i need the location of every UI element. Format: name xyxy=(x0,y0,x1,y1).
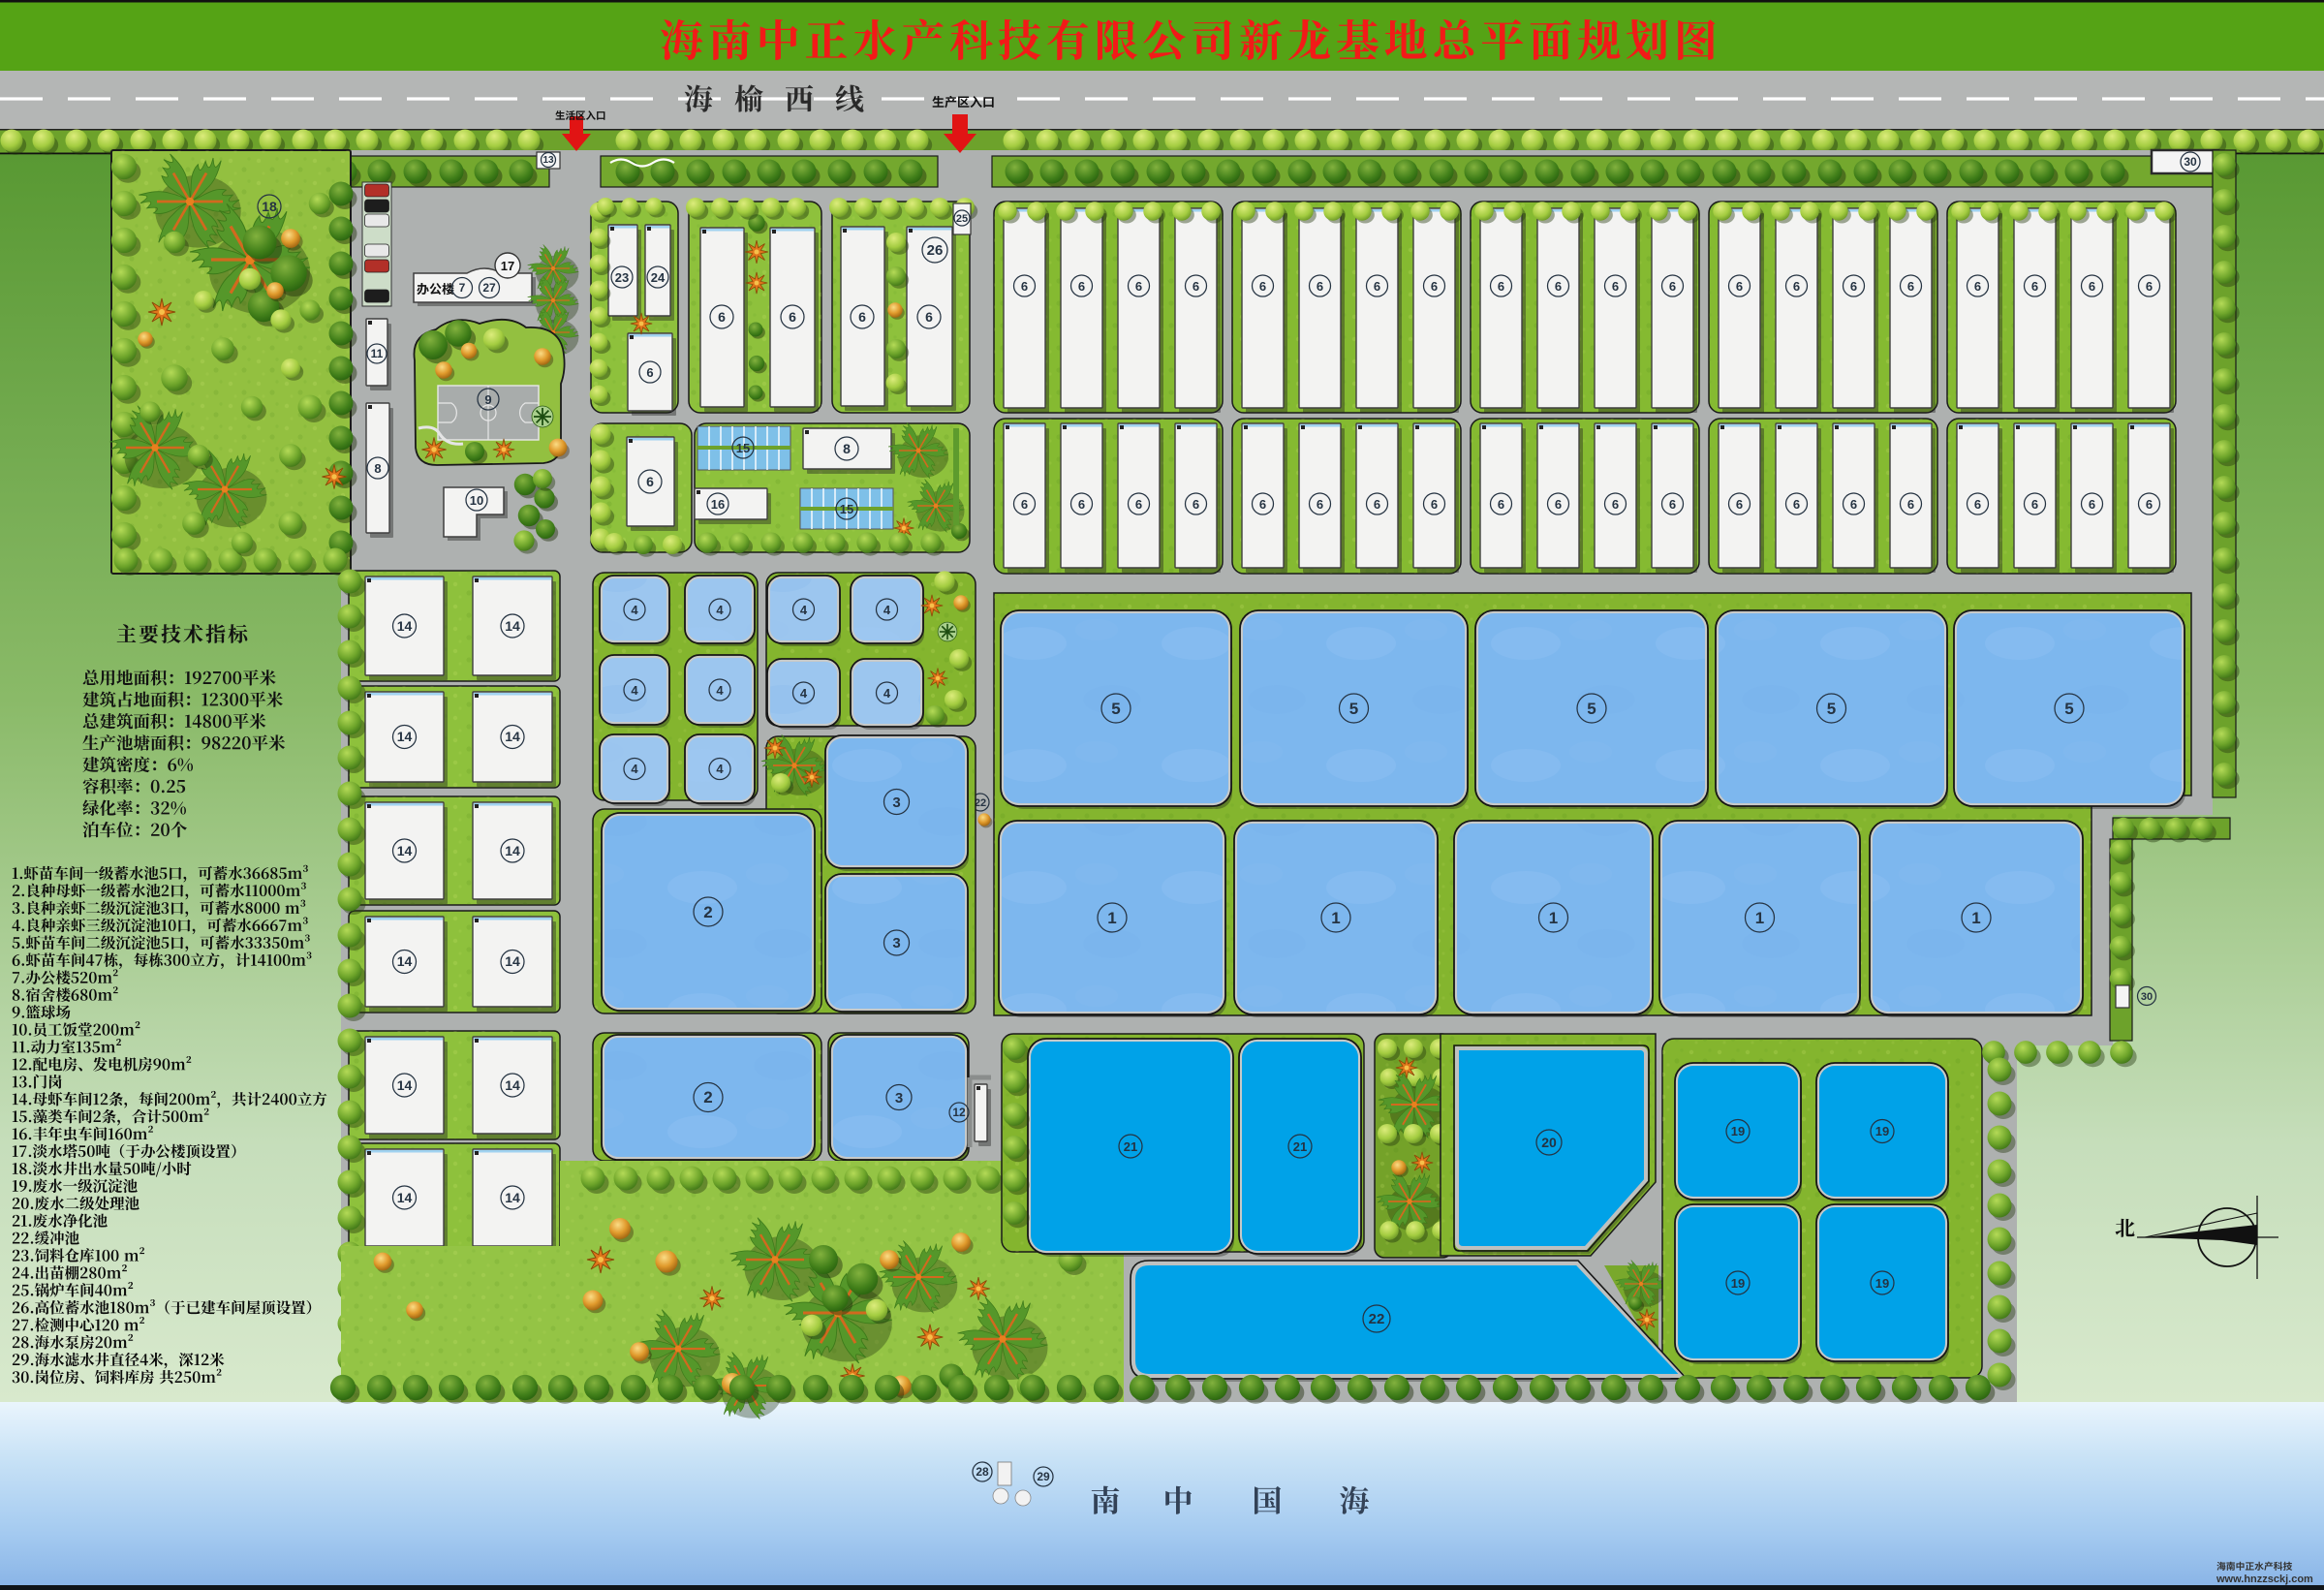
svg-text:6: 6 xyxy=(2031,279,2038,294)
svg-text:6: 6 xyxy=(1736,279,1743,294)
svg-text:14: 14 xyxy=(397,1077,413,1093)
svg-text:3: 3 xyxy=(895,1090,903,1107)
svg-text:2: 2 xyxy=(703,903,712,921)
svg-text:11: 11 xyxy=(371,347,384,360)
svg-text:1: 1 xyxy=(1107,909,1116,927)
svg-text:10: 10 xyxy=(470,493,483,508)
svg-text:15: 15 xyxy=(840,502,853,516)
svg-text:30: 30 xyxy=(2141,991,2153,1003)
svg-text:6: 6 xyxy=(1612,279,1619,294)
svg-text:20: 20 xyxy=(1541,1135,1557,1150)
svg-text:5: 5 xyxy=(1349,700,1358,718)
svg-text:6: 6 xyxy=(1907,279,1914,294)
svg-text:14: 14 xyxy=(505,618,520,634)
svg-text:26: 26 xyxy=(927,242,944,259)
svg-text:28: 28 xyxy=(976,1465,989,1479)
svg-text:4: 4 xyxy=(883,686,891,701)
svg-text:6: 6 xyxy=(1431,497,1438,512)
svg-text:12: 12 xyxy=(952,1106,966,1119)
svg-text:6: 6 xyxy=(1793,497,1800,512)
svg-text:6: 6 xyxy=(2089,497,2095,512)
svg-text:14: 14 xyxy=(505,1190,520,1205)
svg-text:www.hnzzsckj.com: www.hnzzsckj.com xyxy=(2216,1574,2313,1585)
svg-text:27: 27 xyxy=(482,281,496,295)
svg-text:30: 30 xyxy=(2184,155,2197,169)
svg-text:6: 6 xyxy=(1259,497,1266,512)
svg-text:3: 3 xyxy=(892,935,900,951)
svg-text:6: 6 xyxy=(1555,279,1562,294)
svg-text:14: 14 xyxy=(397,843,413,858)
svg-text:6: 6 xyxy=(1612,497,1619,512)
svg-text:6: 6 xyxy=(1669,279,1676,294)
svg-text:6: 6 xyxy=(1021,279,1028,294)
svg-text:14: 14 xyxy=(397,1190,413,1205)
svg-text:6: 6 xyxy=(1259,279,1266,294)
svg-text:9: 9 xyxy=(484,392,491,407)
svg-text:3: 3 xyxy=(892,795,900,811)
svg-text:6: 6 xyxy=(1850,497,1857,512)
svg-text:29: 29 xyxy=(1037,1470,1050,1483)
svg-text:8: 8 xyxy=(374,461,381,476)
svg-text:4: 4 xyxy=(883,603,891,617)
svg-text:6: 6 xyxy=(1793,279,1800,294)
svg-text:6: 6 xyxy=(1555,497,1562,512)
svg-text:6: 6 xyxy=(1193,497,1199,512)
svg-text:4: 4 xyxy=(631,603,638,617)
svg-text:6: 6 xyxy=(2146,497,2153,512)
svg-text:4: 4 xyxy=(631,683,638,698)
svg-text:6: 6 xyxy=(1317,497,1323,512)
svg-text:6: 6 xyxy=(1078,279,1085,294)
svg-text:6: 6 xyxy=(1078,497,1085,512)
svg-text:21: 21 xyxy=(1124,1139,1137,1154)
svg-text:21: 21 xyxy=(1293,1139,1307,1154)
svg-text:4: 4 xyxy=(716,683,724,698)
svg-text:5: 5 xyxy=(1111,700,1120,718)
svg-text:14: 14 xyxy=(397,618,413,634)
svg-text:7: 7 xyxy=(459,281,466,295)
svg-text:6: 6 xyxy=(858,309,866,325)
svg-text:23: 23 xyxy=(615,270,629,285)
svg-text:25: 25 xyxy=(956,213,968,225)
svg-text:4: 4 xyxy=(800,686,808,701)
svg-text:4: 4 xyxy=(800,603,808,617)
svg-text:6: 6 xyxy=(1431,279,1438,294)
svg-text:22: 22 xyxy=(1369,1311,1385,1327)
svg-text:19: 19 xyxy=(1875,1276,1889,1291)
svg-text:5: 5 xyxy=(2064,700,2073,718)
svg-text:18: 18 xyxy=(262,199,277,214)
svg-text:24: 24 xyxy=(651,270,666,285)
svg-text:6: 6 xyxy=(789,309,796,325)
svg-text:14: 14 xyxy=(397,729,413,744)
svg-text:6: 6 xyxy=(718,309,726,325)
svg-text:6: 6 xyxy=(646,365,653,380)
svg-text:6: 6 xyxy=(1374,497,1380,512)
svg-text:6: 6 xyxy=(1193,279,1199,294)
svg-text:6: 6 xyxy=(1135,497,1142,512)
svg-text:6: 6 xyxy=(1736,497,1743,512)
svg-text:6: 6 xyxy=(1317,279,1323,294)
svg-text:19: 19 xyxy=(1875,1124,1889,1138)
svg-text:6: 6 xyxy=(1974,497,1981,512)
svg-text:1: 1 xyxy=(1755,909,1764,927)
svg-text:14: 14 xyxy=(505,1077,520,1093)
svg-text:6: 6 xyxy=(1021,497,1028,512)
svg-text:5: 5 xyxy=(1827,700,1836,718)
svg-text:6: 6 xyxy=(2146,279,2153,294)
svg-text:17: 17 xyxy=(501,259,514,273)
svg-text:4: 4 xyxy=(716,603,724,617)
svg-text:6: 6 xyxy=(1974,279,1981,294)
svg-text:1: 1 xyxy=(1549,909,1558,927)
svg-text:14: 14 xyxy=(505,953,520,969)
svg-text:6: 6 xyxy=(1498,497,1504,512)
svg-text:1: 1 xyxy=(1971,909,1980,927)
svg-text:6: 6 xyxy=(1135,279,1142,294)
svg-text:14: 14 xyxy=(397,953,413,969)
svg-text:8: 8 xyxy=(843,441,851,456)
svg-text:14: 14 xyxy=(505,843,520,858)
svg-text:19: 19 xyxy=(1731,1124,1745,1138)
svg-text:6: 6 xyxy=(1669,497,1676,512)
svg-text:5: 5 xyxy=(1587,700,1596,718)
svg-text:6: 6 xyxy=(1907,497,1914,512)
svg-text:6: 6 xyxy=(2031,497,2038,512)
svg-text:6: 6 xyxy=(1374,279,1380,294)
svg-text:6: 6 xyxy=(646,474,654,489)
svg-text:16: 16 xyxy=(711,497,725,512)
svg-text:19: 19 xyxy=(1731,1276,1745,1291)
svg-text:6: 6 xyxy=(1850,279,1857,294)
svg-text:2: 2 xyxy=(703,1088,712,1107)
svg-text:6: 6 xyxy=(925,309,933,325)
svg-text:1: 1 xyxy=(1331,909,1340,927)
svg-text:14: 14 xyxy=(505,729,520,744)
svg-text:13: 13 xyxy=(542,155,554,166)
svg-text:6: 6 xyxy=(2089,279,2095,294)
svg-text:6: 6 xyxy=(1498,279,1504,294)
svg-text:4: 4 xyxy=(716,762,724,776)
svg-text:15: 15 xyxy=(736,441,750,455)
svg-text:4: 4 xyxy=(631,762,638,776)
